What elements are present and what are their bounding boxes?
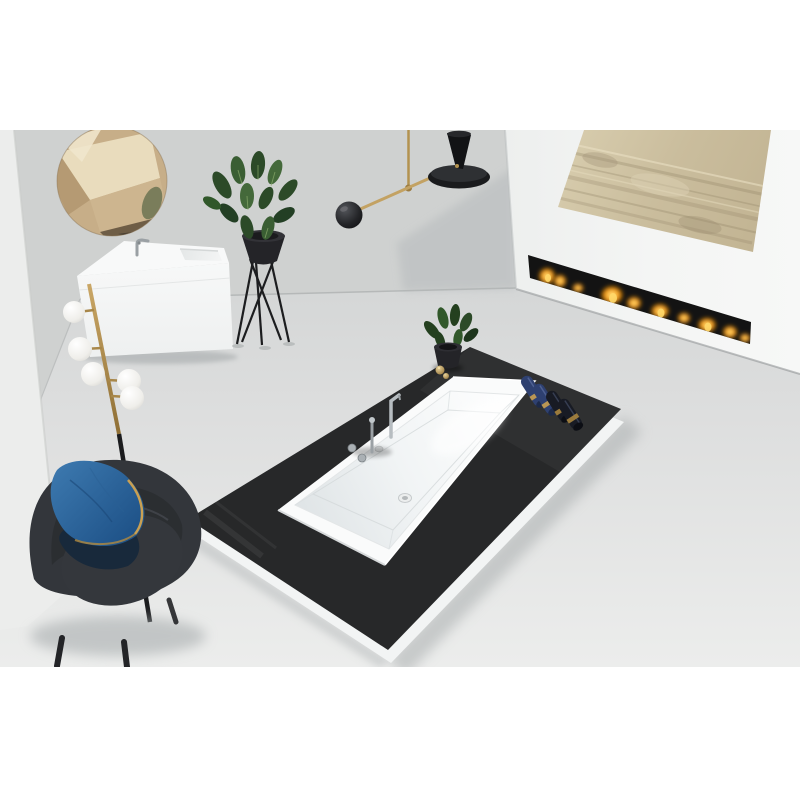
deck-pot-opening	[439, 344, 457, 350]
tub-drain-center	[402, 496, 408, 500]
chair-leg	[124, 642, 127, 667]
ornament-sparkle	[438, 367, 440, 369]
lamp-globe	[120, 386, 144, 410]
lamp-globe	[63, 301, 85, 323]
faucet-handle	[348, 444, 356, 452]
flame-core	[545, 274, 551, 282]
hand-shower-head	[369, 417, 375, 423]
chair-shadow	[30, 616, 206, 656]
flame-core	[705, 323, 712, 332]
scene-canvas: Minimalist bathroom interior render with…	[0, 0, 800, 800]
flame-core	[658, 309, 665, 318]
flame-core	[609, 293, 617, 303]
flame	[677, 312, 691, 324]
stand-foot-shadow	[259, 346, 271, 350]
gold-ornament	[436, 366, 445, 375]
stand-foot-shadow	[283, 342, 295, 346]
pendant-stem-joint	[455, 164, 459, 168]
lamp-globe	[68, 337, 92, 361]
pendant-counterweight	[336, 202, 363, 229]
pendant-cone-top	[447, 131, 471, 137]
spout-tip	[399, 395, 400, 400]
lamp-globe	[81, 362, 105, 386]
faucet-handle	[358, 454, 366, 462]
stand-foot-shadow	[232, 344, 244, 348]
sink-faucet-handle	[137, 241, 140, 244]
bathroom-render: Minimalist bathroom interior render with…	[0, 0, 800, 800]
gold-ornament	[443, 373, 449, 379]
armchair	[29, 460, 206, 667]
